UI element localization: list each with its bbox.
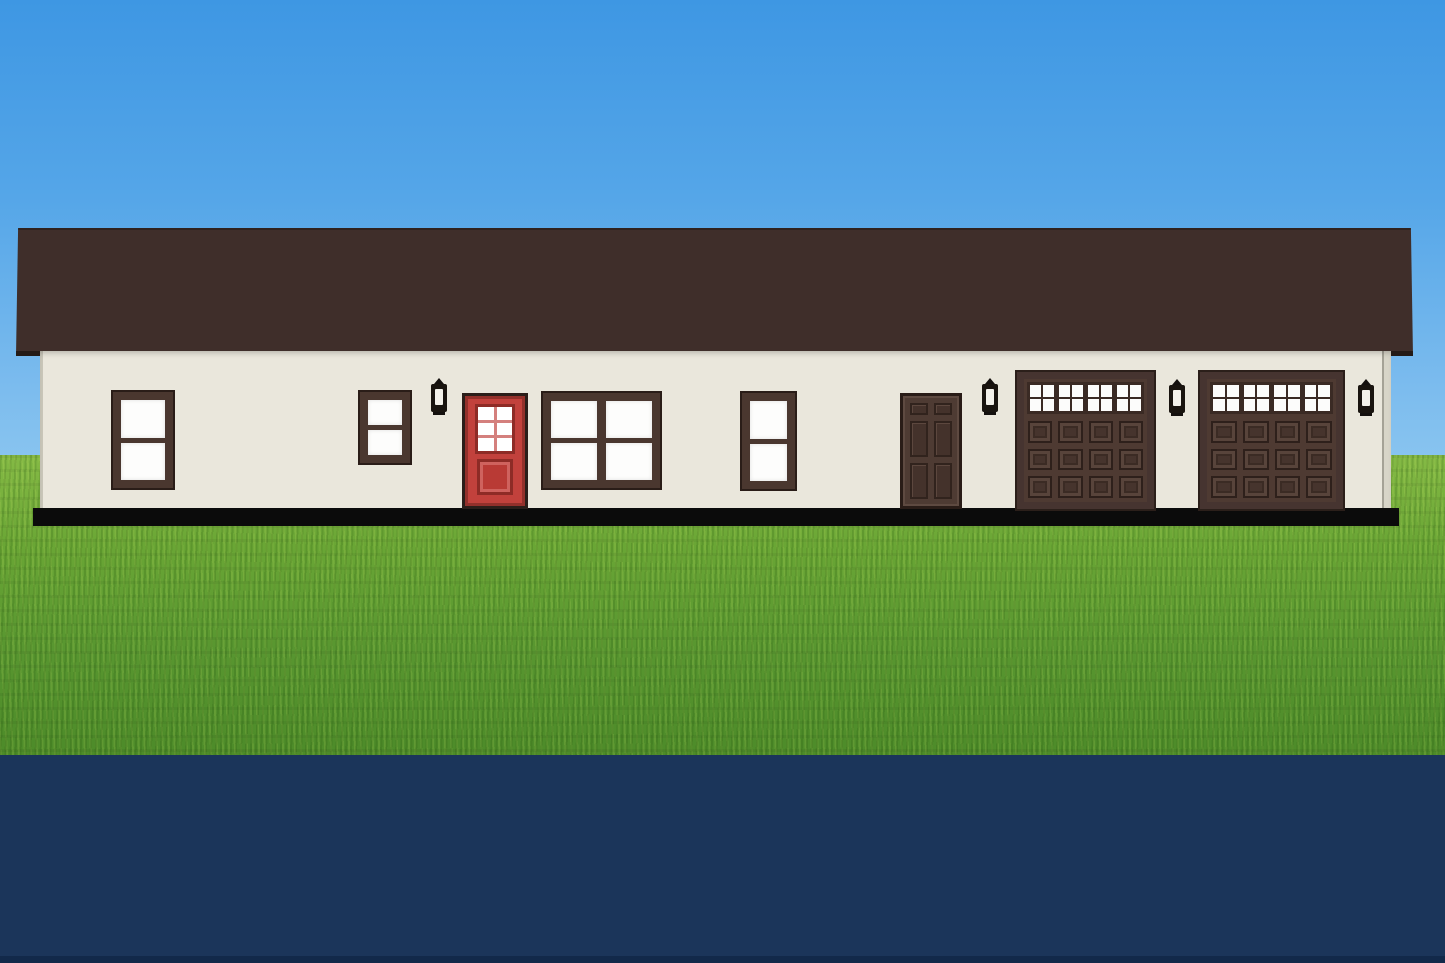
- door-panels: [910, 403, 952, 499]
- house-plan-card: PL-61002 PENNY BARNDOMINIUM 5 BEDROOM 32…: [0, 0, 1445, 963]
- roof: [16, 228, 1413, 356]
- front-entry-door: [462, 393, 528, 509]
- window-center-right: [742, 393, 795, 489]
- wall-lantern-icon: [431, 384, 447, 412]
- garage-panels: [1028, 421, 1143, 498]
- foundation: [33, 508, 1399, 526]
- garage-door-1: [1017, 372, 1154, 509]
- secondary-door: [900, 393, 962, 509]
- door-lower-panel: [477, 459, 513, 495]
- wall-lantern-icon: [1169, 385, 1185, 413]
- wall: [40, 351, 1391, 511]
- window-double-center: [543, 393, 660, 488]
- door-glass-panes: [475, 404, 515, 454]
- garage-window-band: [1027, 382, 1144, 414]
- info-banner: PL-61002 PENNY BARNDOMINIUM 5 BEDROOM 32…: [0, 755, 1445, 963]
- garage-window-band: [1210, 382, 1333, 414]
- garage-door-2: [1200, 372, 1343, 509]
- window-small-left: [360, 392, 410, 463]
- window-far-left: [113, 392, 173, 488]
- garage-panels: [1211, 421, 1332, 498]
- wall-lantern-icon: [1358, 385, 1374, 413]
- house-illustration: [16, 228, 1413, 526]
- wall-lantern-icon: [982, 384, 998, 412]
